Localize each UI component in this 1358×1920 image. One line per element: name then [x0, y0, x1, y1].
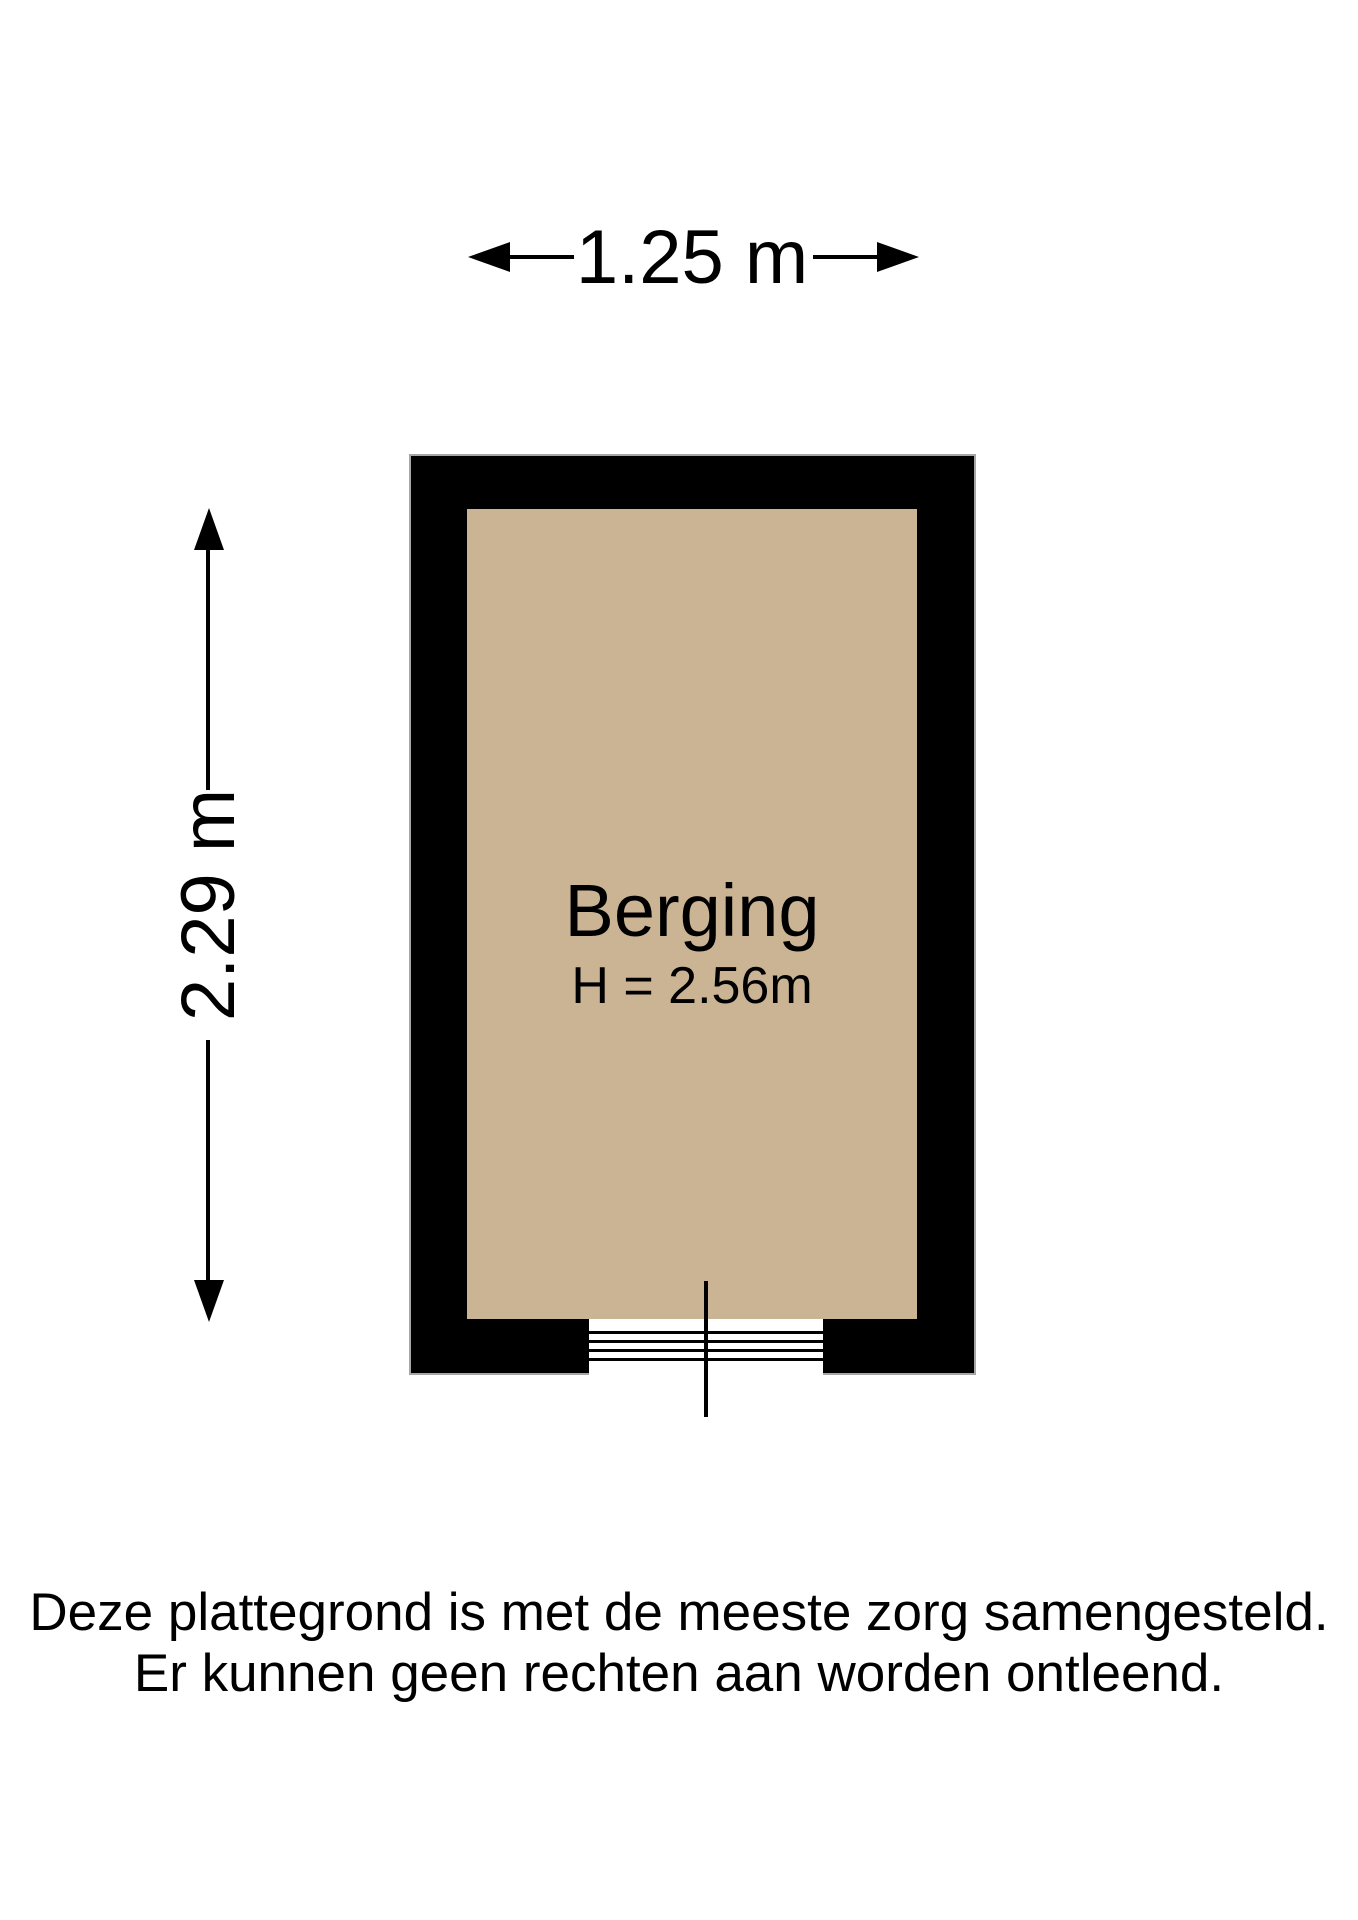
- floorplan-canvas: 1.25 m 2.29 m Berging H = 2.56m Deze pla…: [0, 0, 1358, 1920]
- disclaimer-line-2: Er kunnen geen rechten aan worden ontlee…: [0, 1643, 1358, 1704]
- dimension-line-right: [813, 255, 879, 259]
- disclaimer-line-1: Deze plattegrond is met de meeste zorg s…: [0, 1582, 1358, 1643]
- height-dimension-label: 2.29 m: [171, 789, 247, 1021]
- room-name-label: Berging: [467, 874, 917, 948]
- room-ceiling-height-label: H = 2.56m: [467, 960, 917, 1012]
- disclaimer: Deze plattegrond is met de meeste zorg s…: [0, 1582, 1358, 1705]
- dimension-arrow-right-icon: [877, 242, 919, 272]
- dimension-line-bottom: [206, 1040, 210, 1282]
- door-symbol-line: [704, 1281, 708, 1417]
- dimension-arrow-up-icon: [194, 508, 224, 550]
- dimension-arrow-left-icon: [468, 242, 510, 272]
- width-dimension-label: 1.25 m: [572, 220, 812, 296]
- dimension-line-top: [206, 548, 210, 790]
- room-label-group: Berging H = 2.56m: [467, 874, 917, 1012]
- dimension-arrow-down-icon: [194, 1280, 224, 1322]
- dimension-line-left: [506, 255, 574, 259]
